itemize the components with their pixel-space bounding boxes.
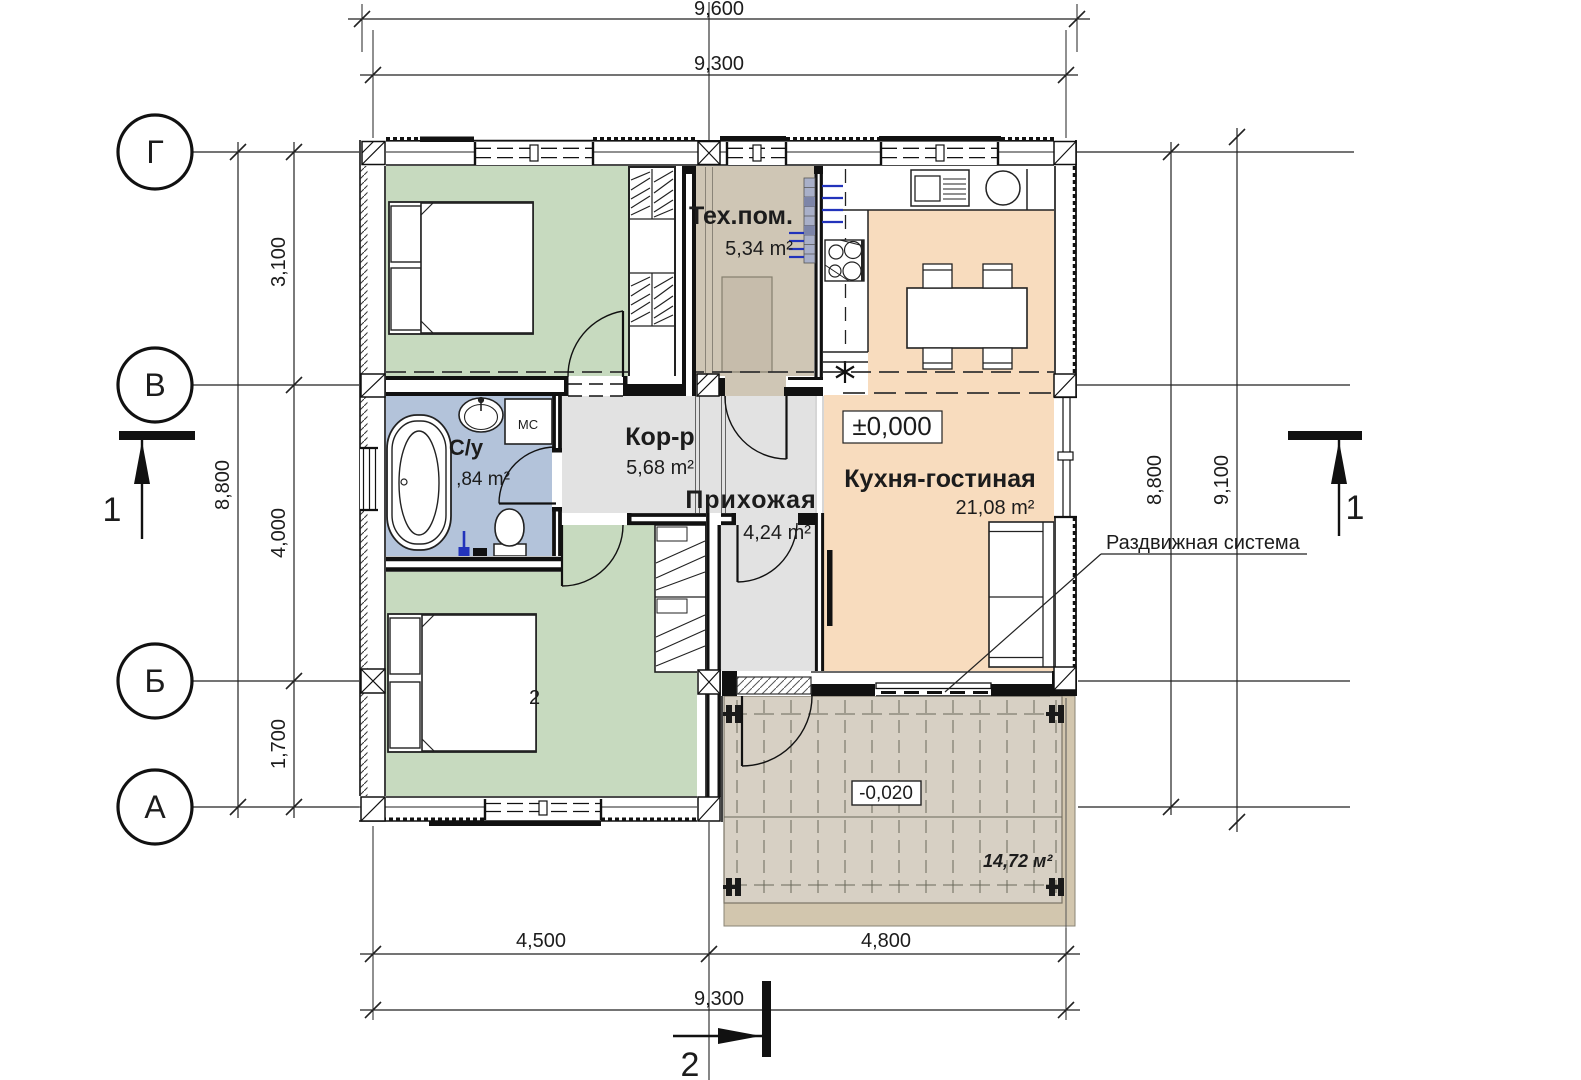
svg-text:1: 1 xyxy=(103,491,122,529)
svg-text:Тех.пом.: Тех.пом. xyxy=(689,202,793,230)
svg-text:Прихожая: Прихожая xyxy=(685,486,816,514)
svg-text:4,000: 4,000 xyxy=(268,508,290,558)
svg-text:9,300: 9,300 xyxy=(694,53,744,75)
svg-text:5,68 m²: 5,68 m² xyxy=(626,457,694,479)
svg-text:9,100: 9,100 xyxy=(1211,455,1233,505)
svg-text:3,100: 3,100 xyxy=(268,237,290,287)
svg-text:9,600: 9,600 xyxy=(694,0,744,20)
svg-text:±0,000: ±0,000 xyxy=(852,411,931,441)
svg-text:4,800: 4,800 xyxy=(861,930,911,952)
svg-text:Б: Б xyxy=(145,663,166,699)
svg-text:Раздвижная система: Раздвижная система xyxy=(1106,532,1301,554)
svg-text:2: 2 xyxy=(681,1046,700,1080)
svg-text:Кухня-гостиная: Кухня-гостиная xyxy=(844,465,1036,493)
svg-text:4,500: 4,500 xyxy=(516,930,566,952)
svg-text:5,34 m²: 5,34 m² xyxy=(725,238,793,260)
svg-text:4,24 m²: 4,24 m² xyxy=(743,522,811,544)
svg-text:1: 1 xyxy=(1346,489,1365,527)
svg-text:2: 2 xyxy=(529,687,540,709)
svg-text:21,08 m²: 21,08 m² xyxy=(956,497,1035,519)
svg-text:8,800: 8,800 xyxy=(1144,455,1166,505)
svg-text:9,300: 9,300 xyxy=(694,988,744,1010)
svg-text:8,800: 8,800 xyxy=(212,460,234,510)
svg-text:В: В xyxy=(144,367,165,403)
svg-text:Г: Г xyxy=(146,134,163,170)
svg-text:1,700: 1,700 xyxy=(268,719,290,769)
svg-text:А: А xyxy=(144,789,166,825)
svg-text:Кор-р: Кор-р xyxy=(625,423,694,451)
svg-text:-0,020: -0,020 xyxy=(859,783,913,804)
svg-text:,84 m²: ,84 m² xyxy=(456,469,510,490)
svg-text:14,72 м²: 14,72 м² xyxy=(983,851,1053,871)
svg-text:МС: МС xyxy=(518,417,538,432)
svg-text:С/у: С/у xyxy=(449,435,484,460)
